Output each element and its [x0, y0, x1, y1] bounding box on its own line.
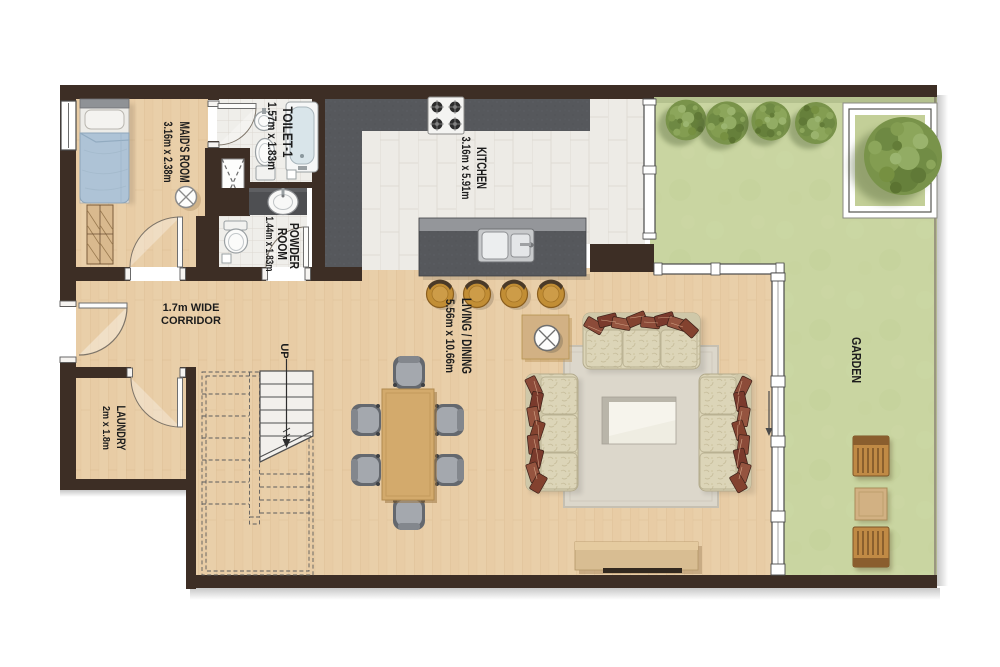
svg-text:3.16m x 5.91m: 3.16m x 5.91m — [459, 137, 471, 200]
svg-text:GARDEN: GARDEN — [849, 337, 863, 383]
svg-text:KITCHEN: KITCHEN — [474, 147, 490, 189]
svg-text:LAUNDRY: LAUNDRY — [114, 406, 126, 451]
svg-text:ROOM: ROOM — [275, 228, 290, 260]
svg-text:MAID'S ROOM: MAID'S ROOM — [177, 122, 193, 183]
svg-text:3.16m x 2.38m: 3.16m x 2.38m — [161, 122, 173, 183]
svg-text:5.56m x 10.66m: 5.56m x 10.66m — [443, 299, 455, 373]
svg-text:CORRIDOR: CORRIDOR — [161, 315, 221, 327]
svg-text:1.57m x 1.83m: 1.57m x 1.83m — [265, 102, 277, 170]
svg-text:2m x 1.8m: 2m x 1.8m — [100, 406, 112, 450]
svg-text:TOILET-1: TOILET-1 — [280, 107, 295, 158]
svg-text:UP: UP — [278, 343, 290, 358]
svg-text:LIVING / DINING: LIVING / DINING — [459, 298, 474, 374]
svg-text:1.44m x 1.83m: 1.44m x 1.83m — [263, 217, 275, 272]
svg-text:1.7m WIDE: 1.7m WIDE — [163, 302, 220, 314]
